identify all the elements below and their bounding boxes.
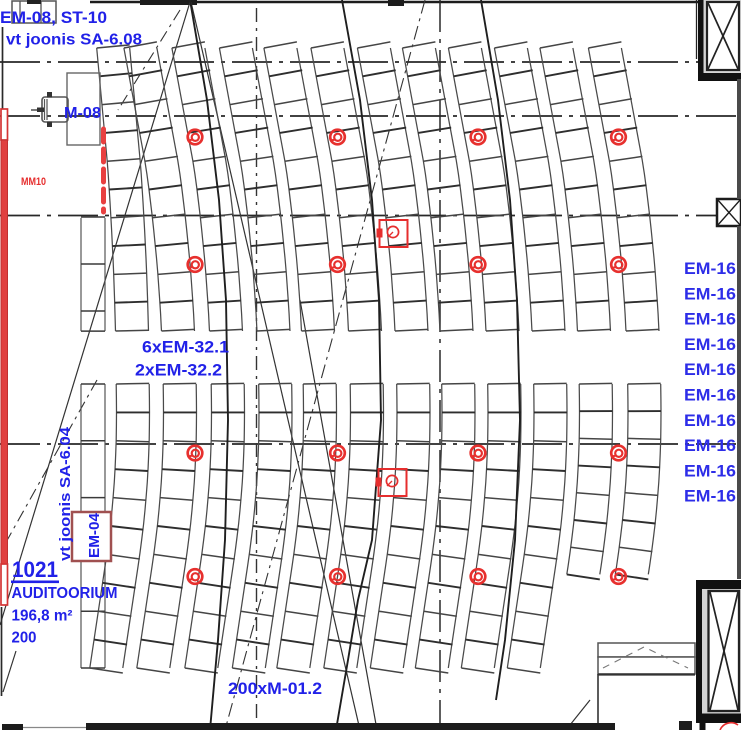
svg-text:196,8 m²: 196,8 m²	[12, 608, 73, 625]
svg-text:vt joonis SA-6.08: vt joonis SA-6.08	[6, 32, 142, 49]
svg-text:EM-16: EM-16	[684, 284, 736, 303]
svg-text:2xEM-32.2: 2xEM-32.2	[135, 361, 222, 380]
svg-text:EM-16: EM-16	[684, 386, 736, 405]
svg-text:EM-16: EM-16	[684, 411, 736, 430]
svg-text:MM10: MM10	[21, 176, 46, 188]
svg-text:EM-16: EM-16	[684, 487, 736, 506]
svg-text:1021: 1021	[12, 557, 58, 582]
svg-text:200: 200	[12, 630, 37, 647]
svg-text:EM-16: EM-16	[684, 259, 736, 278]
svg-text:EM-04: EM-04	[86, 512, 103, 558]
svg-text:EM-16: EM-16	[684, 360, 736, 379]
svg-text:EM-08, ST-10: EM-08, ST-10	[0, 8, 107, 27]
svg-text:EM-16: EM-16	[684, 335, 736, 354]
svg-text:6xEM-32.1: 6xEM-32.1	[142, 338, 229, 357]
svg-text:EM-16: EM-16	[684, 436, 736, 455]
svg-text:vt joonis SA-6.04: vt joonis SA-6.04	[57, 426, 74, 561]
svg-text:M-08: M-08	[64, 105, 101, 122]
svg-text:EM-16: EM-16	[684, 461, 736, 480]
svg-text:EM-16: EM-16	[684, 310, 736, 329]
svg-text:AUDITOORIUM: AUDITOORIUM	[12, 585, 118, 602]
svg-text:200xM-01.2: 200xM-01.2	[228, 679, 322, 698]
